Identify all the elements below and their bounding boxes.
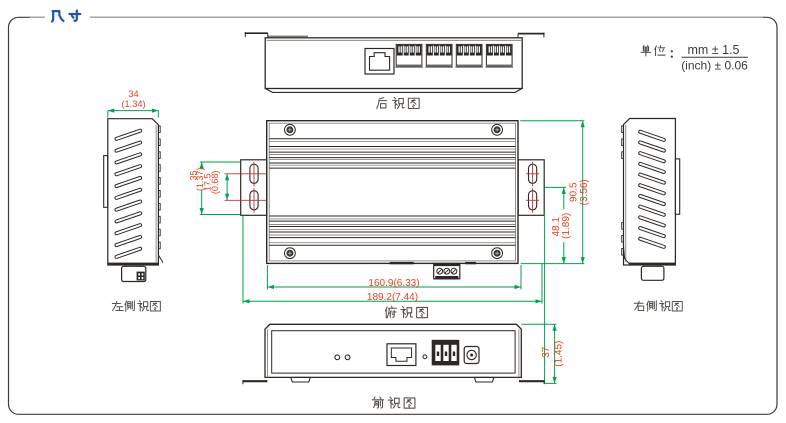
svg-text:189.2(7.44): 189.2(7.44) [367, 292, 418, 303]
svg-text:(0.68): (0.68) [210, 171, 220, 195]
svg-text:37: 37 [541, 346, 552, 358]
svg-text:mm ± 1.5: mm ± 1.5 [687, 43, 739, 57]
svg-text:34: 34 [128, 89, 138, 99]
svg-text:(inch) ± 0.06: (inch) ± 0.06 [681, 59, 748, 73]
svg-text:90.5: 90.5 [568, 182, 579, 202]
svg-text:(1.89): (1.89) [561, 213, 572, 239]
svg-text:(1.34): (1.34) [121, 99, 145, 109]
svg-text:(1.45): (1.45) [553, 341, 564, 367]
svg-text:(3.56): (3.56) [579, 179, 590, 205]
svg-text:160.9(6.33): 160.9(6.33) [368, 278, 419, 289]
